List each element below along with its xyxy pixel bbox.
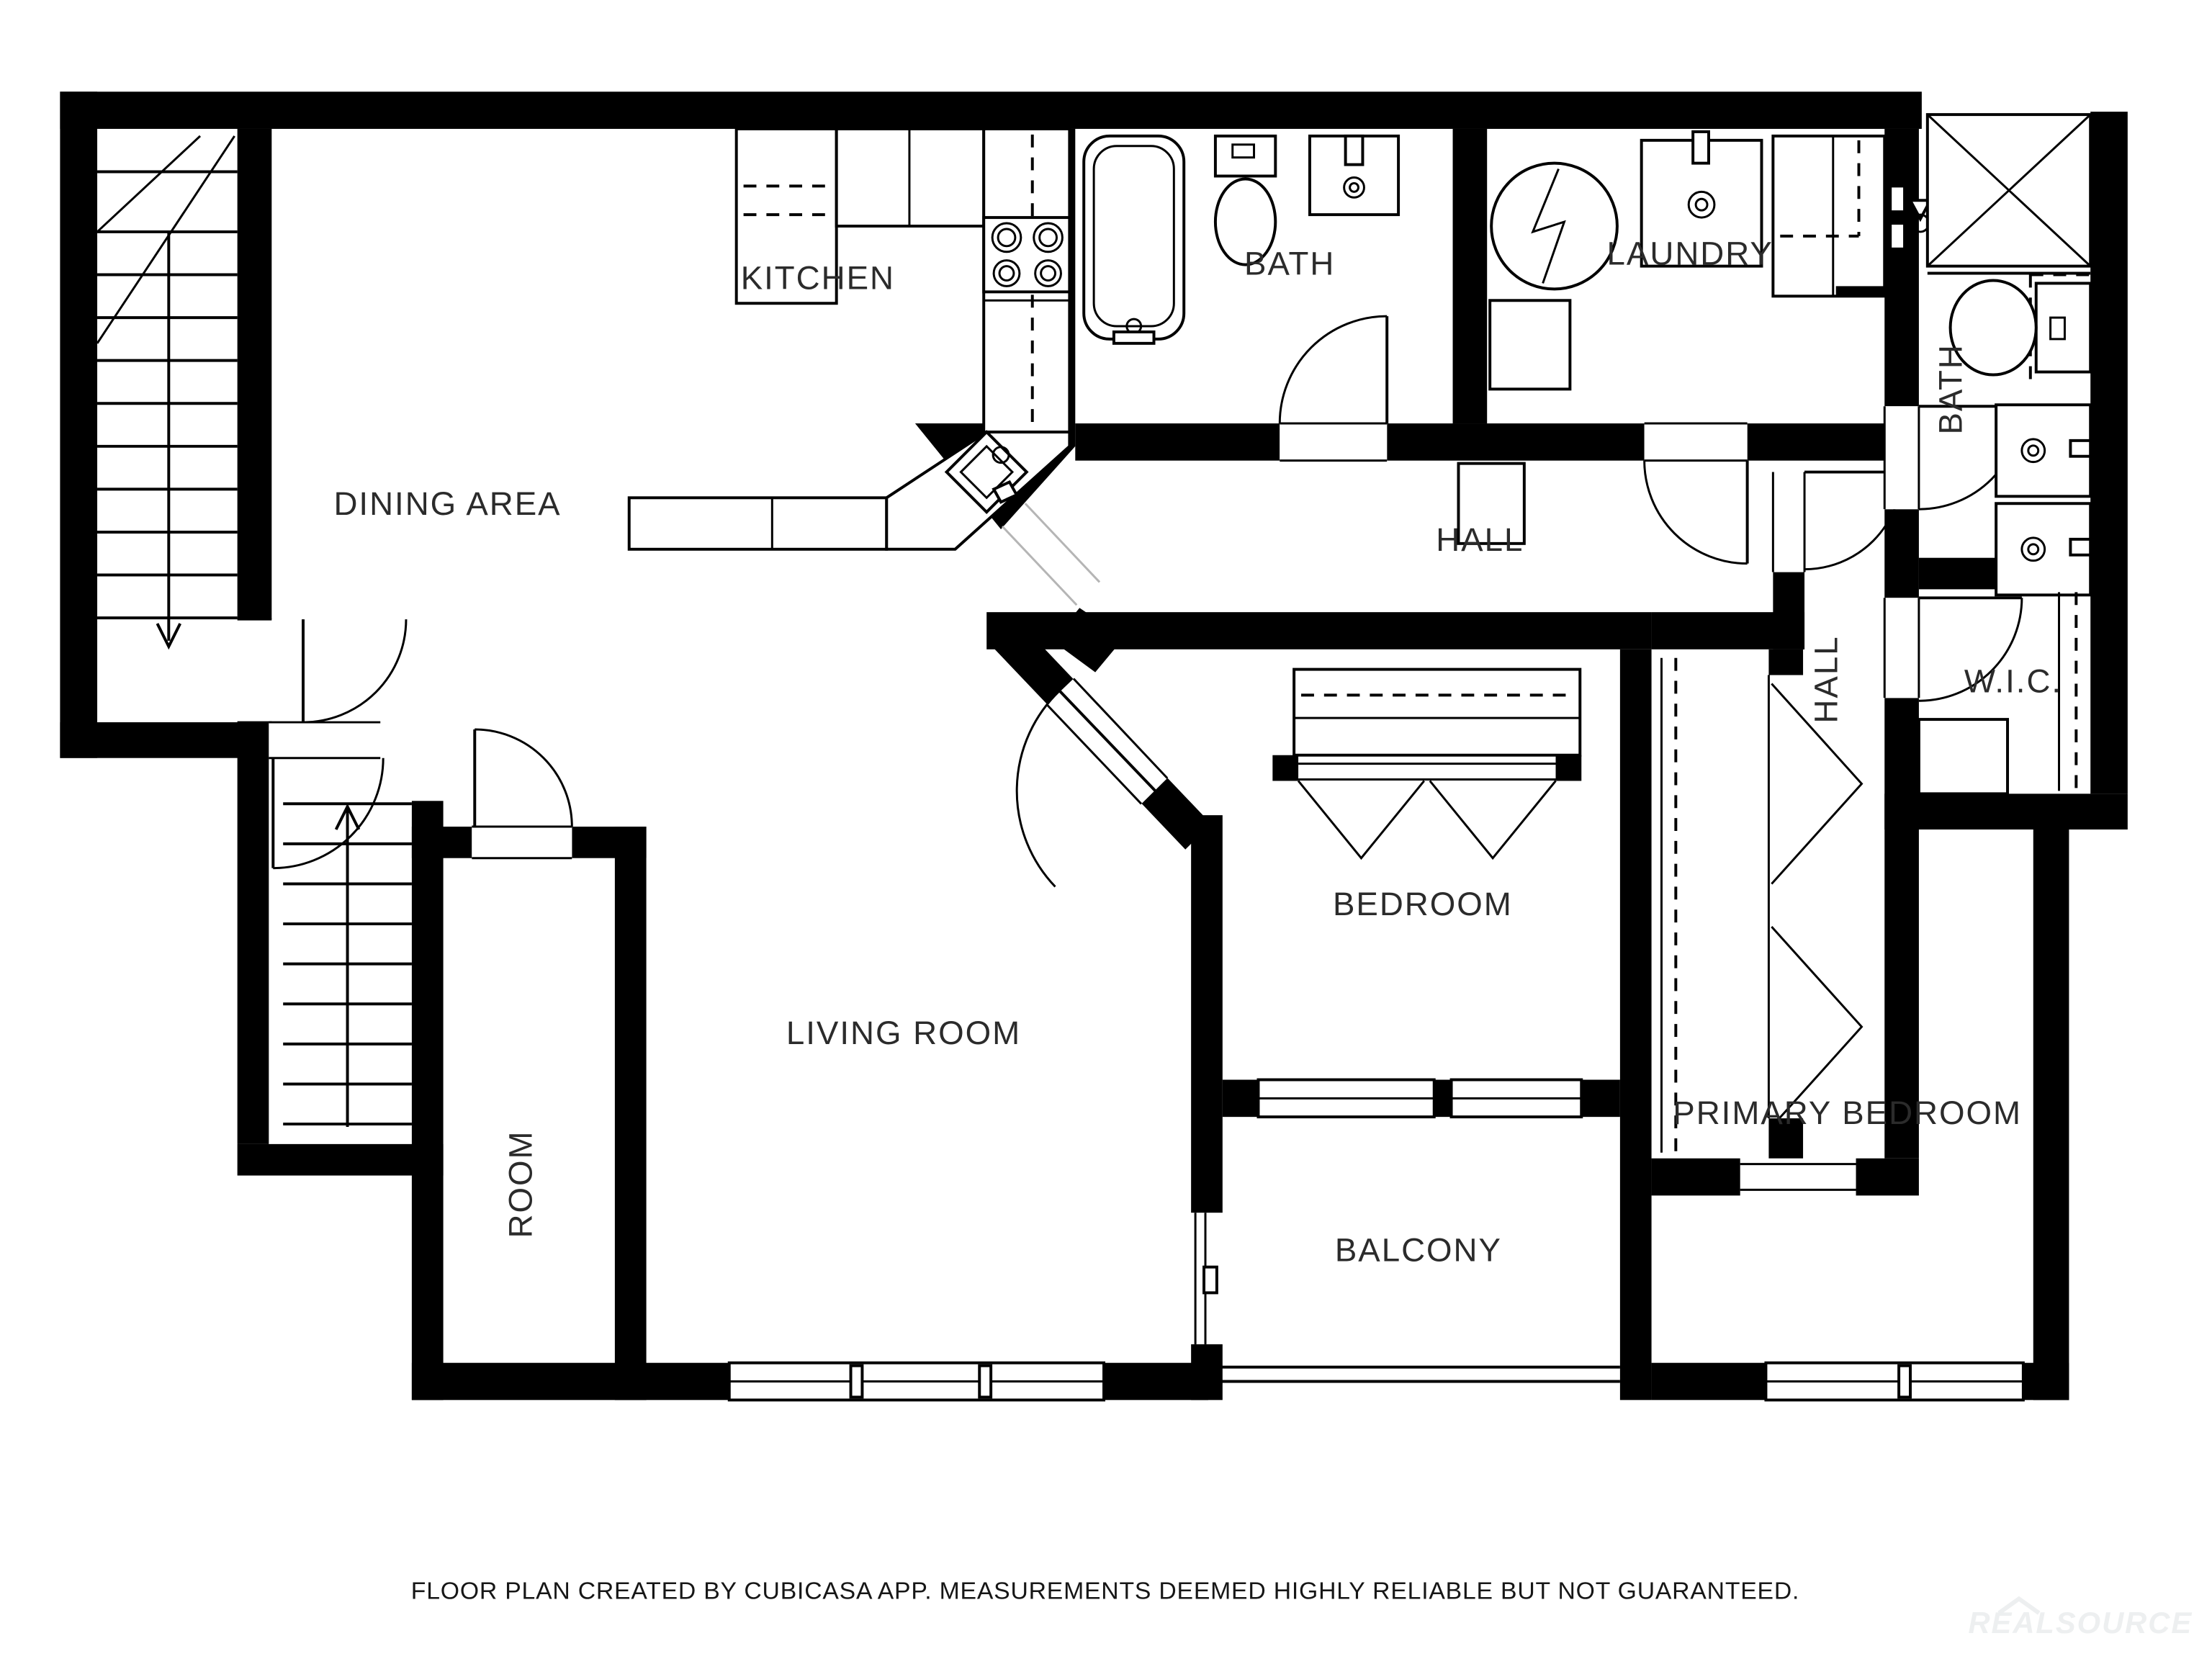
door-balcony-slider — [1195, 1213, 1217, 1344]
shower-box-icon — [1928, 114, 2090, 273]
watermark-text: REALSOURCE — [1968, 1606, 2193, 1640]
label-bath-top: BATH — [1244, 246, 1335, 282]
living-room-windows — [729, 1363, 1104, 1401]
stove-icon — [984, 217, 1069, 292]
bathtub-icon — [1084, 136, 1184, 343]
label-living-room: LIVING ROOM — [786, 1015, 1021, 1051]
label-dining-area: DINING AREA — [333, 485, 561, 522]
door-hall-primary — [1773, 472, 1902, 572]
label-room: ROOM — [503, 1130, 539, 1238]
label-hall-upper: HALL — [1436, 521, 1524, 558]
sink-icon — [1310, 136, 1398, 215]
label-kitchen: KITCHEN — [741, 259, 895, 296]
floor-plan: DINING AREA KITCHEN BATH LAUNDRY HALL BA… — [0, 0, 2212, 1659]
label-balcony: BALCONY — [1335, 1232, 1502, 1269]
staircase-down — [97, 136, 238, 647]
bedroom-balcony-windows — [1258, 1080, 1581, 1118]
double-vanity-icon — [1996, 405, 2090, 595]
laundry-counter — [1773, 136, 1884, 296]
watermark: REALSOURCE — [1968, 1599, 2193, 1640]
door-stairwell — [238, 619, 406, 722]
label-wic: W.I.C. — [1964, 662, 2062, 699]
hall-closet — [1661, 658, 1861, 1153]
door-laundry — [1645, 423, 1748, 564]
toilet-right-icon — [1951, 275, 2091, 384]
door-room — [472, 729, 572, 858]
label-hall-right: HALL — [1808, 635, 1845, 723]
balcony-railing — [1208, 1367, 1620, 1382]
door-dining-living — [269, 722, 383, 868]
label-bedroom: BEDROOM — [1333, 886, 1513, 922]
washing-machine-icon — [1491, 163, 1617, 289]
staircase-up — [283, 804, 412, 1127]
door-bath-top — [1280, 316, 1387, 461]
opening-hall-bottom — [1740, 1164, 1856, 1190]
label-primary-bedroom: PRIMARY BEDROOM — [1673, 1094, 2022, 1131]
bedroom-closet — [1272, 670, 1581, 858]
kitchen-corner-lines — [1002, 503, 1100, 605]
footer-disclaimer: FLOOR PLAN CREATED BY CUBICASA APP. MEAS… — [411, 1577, 1799, 1604]
label-bath-right: BATH — [1932, 343, 1969, 434]
primary-bedroom-windows — [1766, 1363, 2023, 1401]
label-laundry: LAUNDRY — [1607, 235, 1773, 272]
